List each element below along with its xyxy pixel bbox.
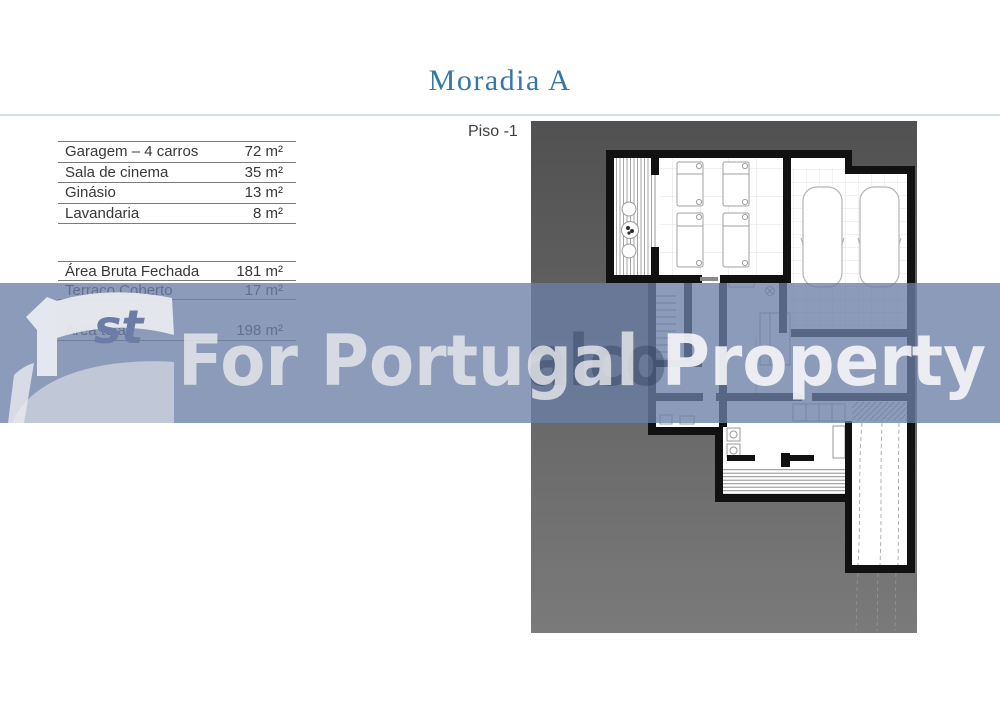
car-icon xyxy=(803,187,842,287)
logo-numeral-one xyxy=(26,297,57,376)
table-row: Terraço Coberto 17 m² xyxy=(58,281,296,300)
logo-swoosh-highlight xyxy=(8,363,34,423)
table-row: Área Bruta Fechada 181 m² xyxy=(58,262,296,281)
room-label: Sala de cinema xyxy=(58,164,168,181)
total-value: 198 m² xyxy=(236,322,296,339)
floor-label: Piso -1 xyxy=(468,123,518,141)
total-value: 17 m² xyxy=(245,282,296,299)
floor-plan-panel xyxy=(531,121,917,633)
table-row: Área total 198 m² xyxy=(58,321,296,341)
door-threshold xyxy=(700,277,718,281)
totals-table: Área Bruta Fechada 181 m² Terraço Cobert… xyxy=(58,261,296,341)
terrace-deck-stripes xyxy=(723,467,845,494)
ramp-hatch xyxy=(852,402,907,421)
room-area-table: Garagem – 4 carros 72 m² Sala de cinema … xyxy=(58,141,296,224)
room-area-value: 35 m² xyxy=(245,164,296,181)
room-area-value: 13 m² xyxy=(245,184,296,201)
room-area-value: 72 m² xyxy=(245,143,296,160)
car-icon xyxy=(860,187,899,287)
total-label: Terraço Coberto xyxy=(58,282,173,299)
total-value: 181 m² xyxy=(236,263,296,280)
total-label: Área Bruta Fechada xyxy=(58,263,199,280)
room-label: Lavandaria xyxy=(58,205,139,222)
counter-icon xyxy=(833,426,845,458)
logo-swoosh xyxy=(12,361,174,423)
section-divider-line xyxy=(0,114,1000,116)
page-title: Moradia A xyxy=(0,64,1000,98)
table-row: Sala de cinema 35 m² xyxy=(58,163,296,184)
table-row: Lavandaria 8 m² xyxy=(58,204,296,225)
sink-icon xyxy=(680,416,694,424)
table-row: Garagem – 4 carros 72 m² xyxy=(58,142,296,163)
floor-plan-svg xyxy=(531,121,917,633)
deck-stripes xyxy=(614,158,652,276)
total-label: Área total xyxy=(58,322,129,339)
room-label: Garagem – 4 carros xyxy=(58,143,198,160)
brochure-page: Moradia A Piso -1 Garagem – 4 carros 72 … xyxy=(0,0,1000,706)
planter-icons xyxy=(622,202,639,258)
table-row: Ginásio 13 m² xyxy=(58,183,296,204)
room-label: Ginásio xyxy=(58,184,116,201)
sink-icon xyxy=(660,415,672,424)
room-area-value: 8 m² xyxy=(253,205,296,222)
